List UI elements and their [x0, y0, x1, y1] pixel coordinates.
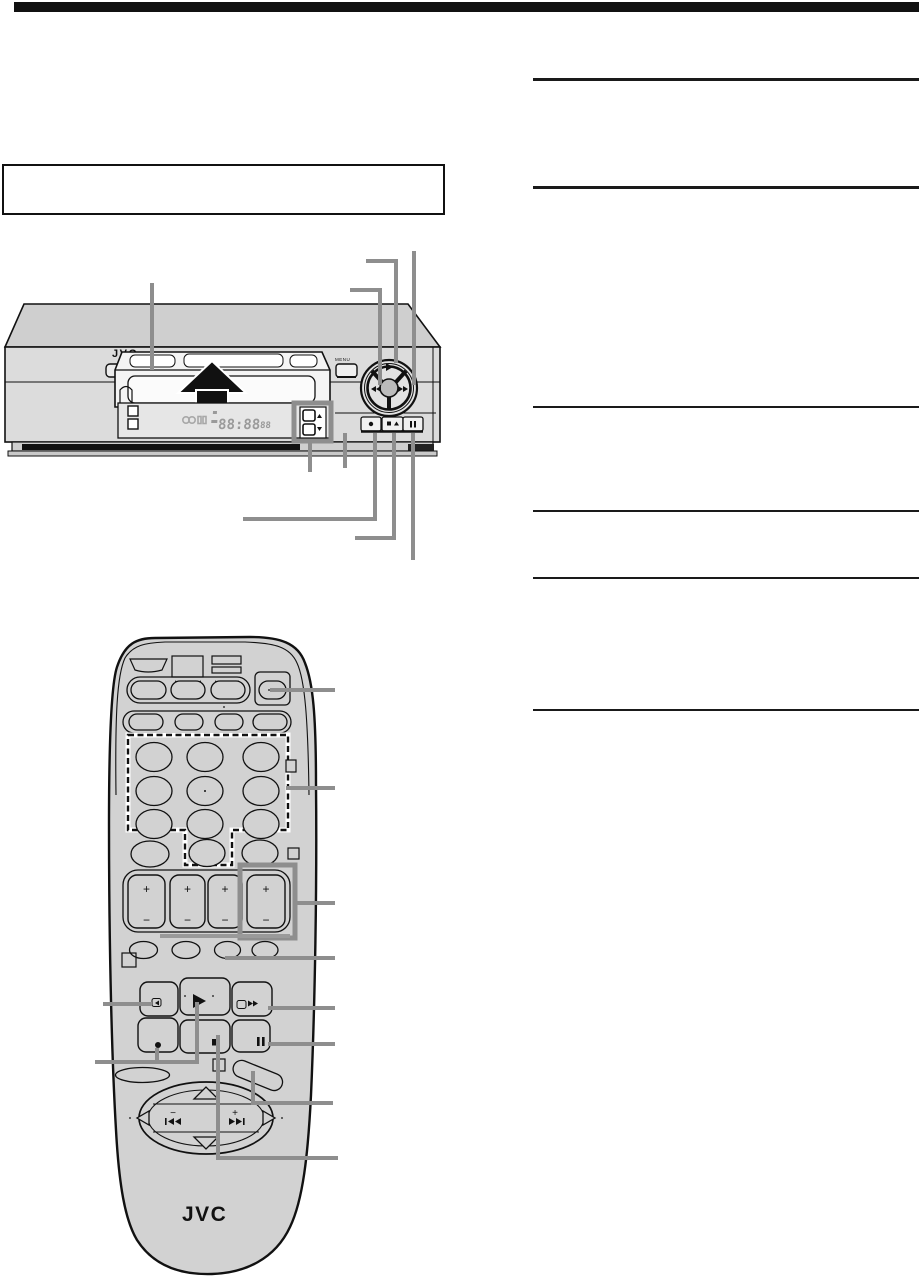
vcr-plinth	[8, 451, 437, 456]
marker-dot	[223, 706, 225, 708]
record-icon	[155, 1042, 161, 1048]
tray-window-center	[184, 354, 283, 367]
svg-text:−: −	[262, 913, 269, 927]
rocker-1: + −	[128, 875, 165, 928]
thin-bar-button	[116, 1068, 170, 1083]
tray-window-right	[290, 355, 317, 367]
pause-button	[232, 1020, 270, 1052]
vcr-front-panel-figure: JVC 88:88 88	[0, 240, 460, 570]
digit-button	[187, 810, 223, 839]
right-column-rule	[533, 406, 919, 408]
digit-button	[243, 810, 279, 839]
svg-text:+: +	[221, 882, 228, 896]
remote-control-figure: + − + − + − + −	[85, 625, 345, 1282]
channel-down-button	[303, 424, 315, 435]
vcr-top-face	[5, 304, 440, 347]
digit-button	[131, 841, 169, 867]
digit-button	[243, 777, 279, 806]
svg-text:−: −	[143, 913, 150, 927]
digit-button	[136, 777, 172, 806]
vcr-base-slot	[22, 444, 300, 450]
row2-button-1	[129, 714, 163, 730]
small-square-marker	[288, 848, 299, 859]
svg-text:−: −	[184, 913, 191, 927]
row2-button-3	[215, 714, 243, 730]
digit-button	[243, 743, 279, 772]
pad-minus-label: −	[170, 1108, 176, 1119]
small-button-2	[172, 942, 200, 959]
right-column-rule	[533, 709, 919, 711]
small-button-3	[215, 942, 241, 959]
right-column-rule	[533, 186, 919, 189]
digit-button-zero	[189, 840, 225, 867]
row1-button-2	[171, 681, 205, 699]
row2-button-2	[175, 714, 203, 730]
indicator-lamp-bottom	[128, 419, 138, 429]
rocker-3: + −	[208, 875, 242, 928]
svg-text:+: +	[143, 882, 150, 896]
svg-text:88:88: 88:88	[218, 417, 261, 433]
power-dot	[268, 689, 270, 691]
rocker-channel: + −	[247, 875, 285, 928]
deck-button-bar	[361, 417, 423, 432]
small-button-1	[130, 942, 158, 959]
menu-button	[336, 364, 357, 377]
svg-text:88: 88	[260, 421, 272, 431]
number-pad	[131, 743, 279, 868]
record-icon	[369, 422, 373, 426]
ir-window	[130, 659, 167, 672]
indicator-lamp-top	[128, 406, 138, 416]
digit-button	[136, 810, 172, 839]
rocker-2: + −	[170, 875, 205, 928]
right-column-rule	[533, 78, 919, 81]
slot-shadow	[160, 934, 290, 938]
svg-text:−: −	[221, 913, 228, 927]
digit-button	[187, 743, 223, 772]
fast-forward-button	[232, 982, 272, 1016]
right-column-rule	[533, 510, 919, 512]
svg-text:+: +	[184, 882, 191, 896]
note-box	[2, 164, 445, 215]
play-button	[180, 978, 230, 1015]
pad-plus-label: +	[232, 1108, 238, 1119]
small-button-4	[252, 942, 278, 959]
row2-button-4	[253, 714, 287, 730]
digit-button	[136, 743, 172, 772]
row1-button-1	[131, 681, 166, 699]
channel-up-button	[303, 410, 315, 421]
right-column-rule	[533, 577, 919, 579]
transport-cluster	[138, 978, 272, 1053]
digit-button	[242, 840, 278, 866]
menu-button-label: MENU	[335, 357, 350, 362]
stop-button	[180, 1020, 230, 1053]
manual-page: JVC 88:88 88	[0, 0, 919, 1282]
remote-brand-logo: JVC	[182, 1203, 227, 1226]
digit-5-dot	[204, 790, 206, 792]
shuttle-dial	[361, 360, 417, 416]
side-tab	[286, 760, 296, 772]
svg-text:+: +	[262, 882, 269, 896]
row1-button-3	[211, 681, 245, 699]
page-header-bar	[14, 2, 919, 12]
